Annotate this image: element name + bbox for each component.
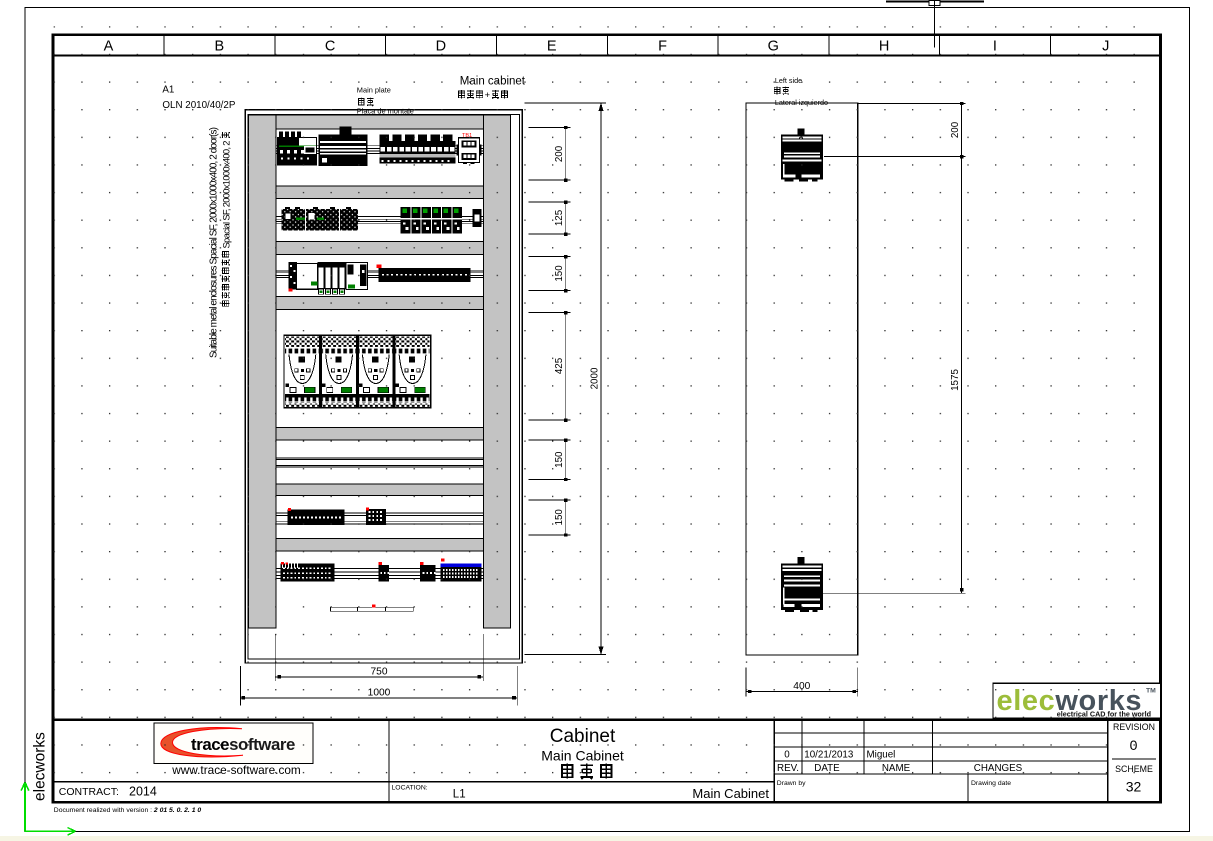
svg-text:elecworks: elecworks <box>32 732 49 801</box>
svg-text:Document realized with version: Document realized with version : 2 01 5.… <box>54 807 202 814</box>
